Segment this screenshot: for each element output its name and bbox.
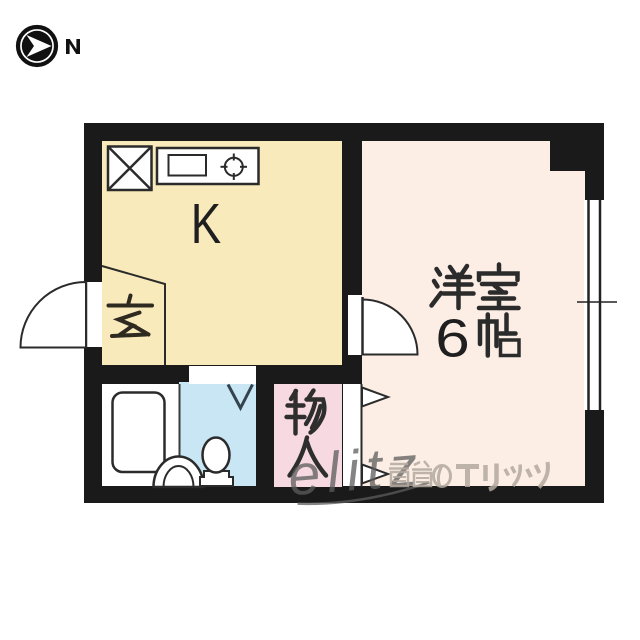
svg-text:K: K (191, 191, 221, 255)
svg-text:6: 6 (435, 308, 470, 368)
